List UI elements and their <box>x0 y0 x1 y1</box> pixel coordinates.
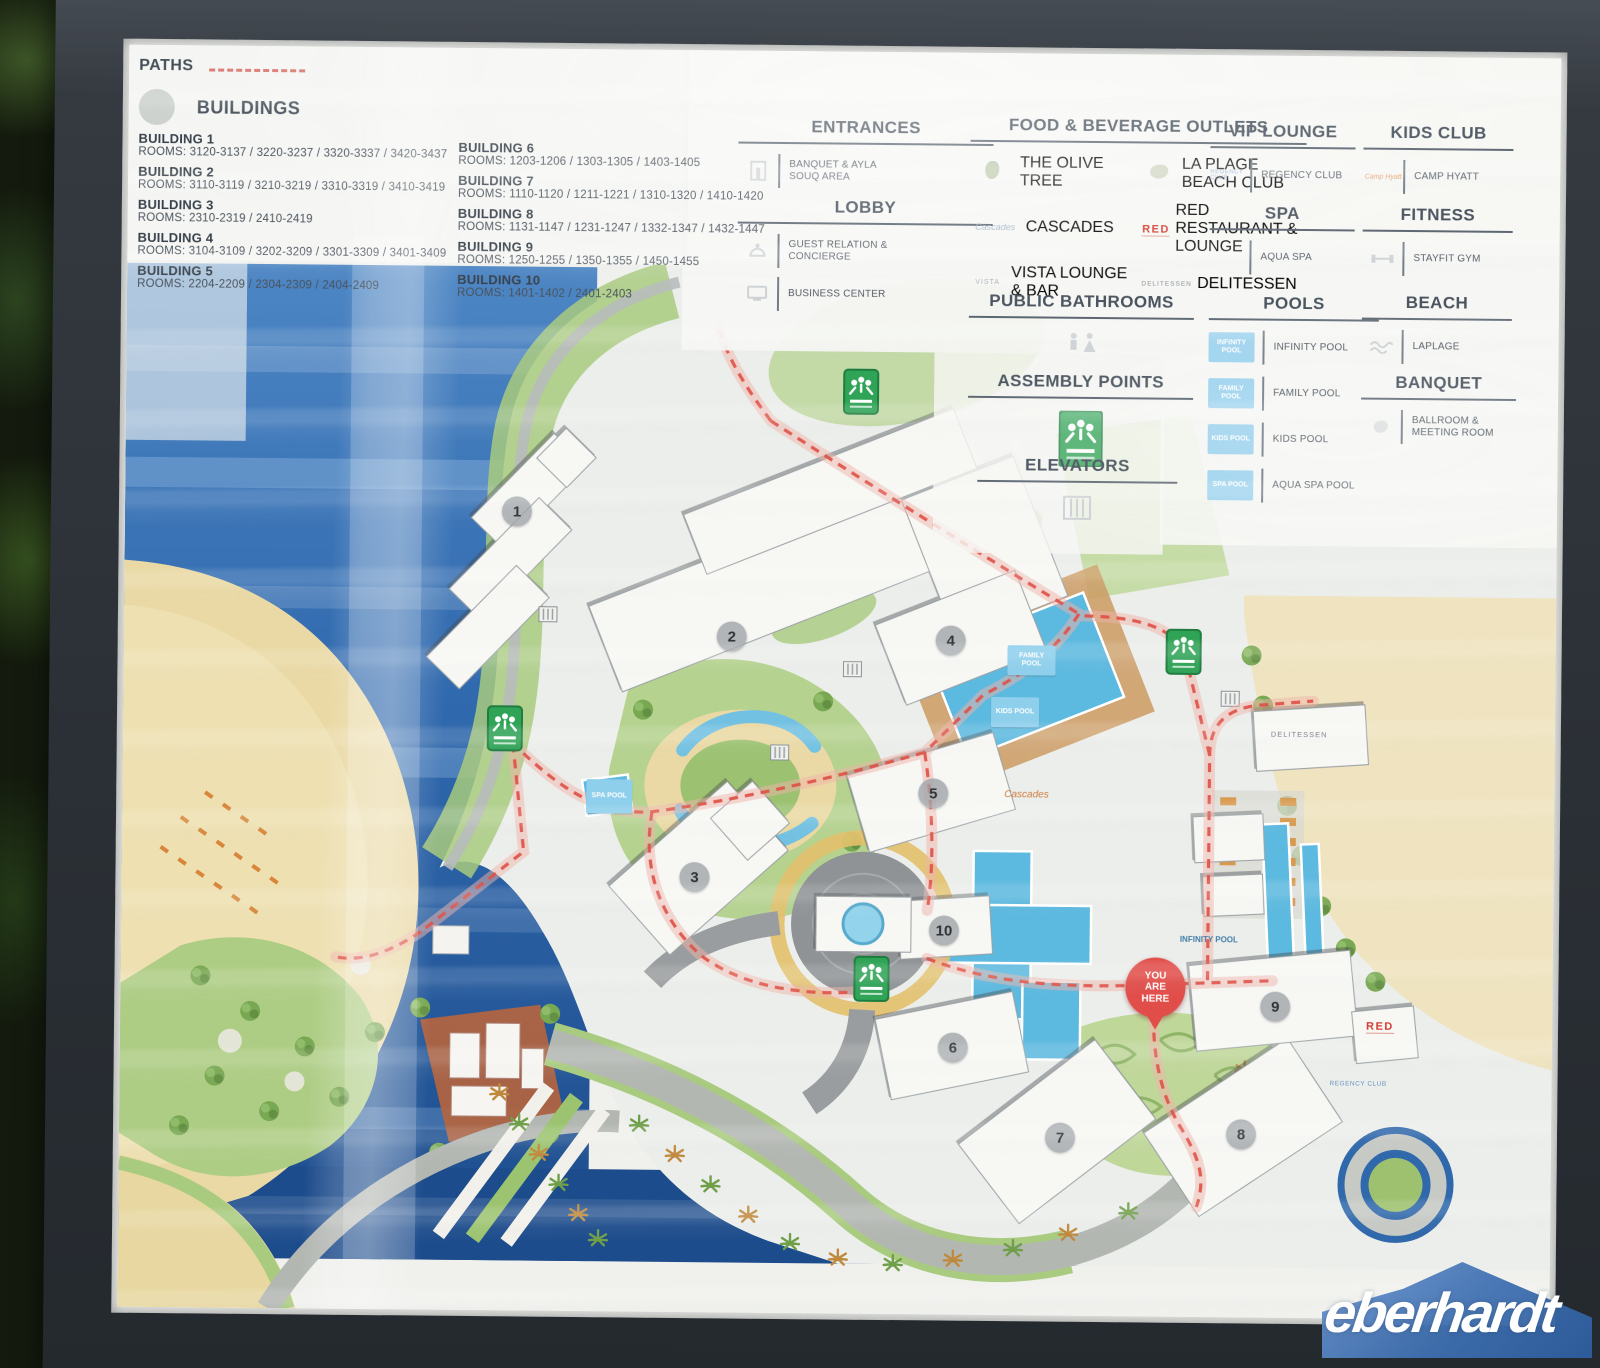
legend-row: GUEST RELATION & CONCIERGE <box>737 234 992 270</box>
legend-row: Cascades CASCADES <box>969 200 1134 256</box>
map-marker-building-5: 5 <box>918 778 948 808</box>
legend-row: INFINITY POOL INFINITY POOL <box>1208 330 1378 366</box>
building-dot-sample <box>139 89 175 125</box>
map-label-regency-club: REGENCY CLUB <box>1329 1080 1386 1088</box>
legend-row: LAPLAGE <box>1361 330 1511 365</box>
map-marker-building-8: 8 <box>1226 1119 1256 1149</box>
building-entry: BUILDING 5ROOMS: 2204-2209 / 2304-2309 /… <box>137 263 462 293</box>
olive-tree-logo <box>970 160 1020 183</box>
legend-row: BALLROOM & MEETING ROOM <box>1361 410 1516 445</box>
map-marker-building-3: 3 <box>679 862 709 892</box>
building-entry: BUILDING 10ROOMS: 1401-1402 / 2401-2403 <box>457 272 767 302</box>
assembly-title: ASSEMBLY POINTS <box>968 371 1193 400</box>
sign-frame: PATHS BUILDINGS BUILDING 1ROOMS: 3120-31… <box>43 0 1600 1368</box>
buildings-legend: BUILDINGS <box>139 89 301 127</box>
building-entry: BUILDING 8ROOMS: 1131-1147 / 1231-1247 /… <box>458 206 768 236</box>
legend-row: AQUA SPA <box>1209 240 1354 275</box>
kids-pool-chip: KIDS POOL <box>1208 424 1254 454</box>
legend-row: BUSINESS CENTER <box>737 277 992 313</box>
paths-label: PATHS <box>139 57 194 76</box>
paths-dash-sample <box>210 68 306 72</box>
map-marker-building-1: 1 <box>502 496 532 526</box>
beach-title: BEACH <box>1362 293 1512 321</box>
buildings-label: BUILDINGS <box>197 97 301 119</box>
entrance-icon <box>738 160 778 182</box>
banquet-title: BANQUET <box>1361 373 1516 401</box>
dumbbell-icon <box>1362 253 1402 265</box>
map-marker-building-4: 4 <box>936 625 966 655</box>
vip-title: VIP LOUNGE <box>1210 121 1355 149</box>
business-center-icon <box>737 285 777 303</box>
lobby-title: LOBBY <box>738 197 993 226</box>
section-vip-lounge: VIP LOUNGE REGENCY CLUB REGENCY CLUB <box>1210 121 1356 193</box>
section-banquet: BANQUET BALLROOM & MEETING ROOM <box>1361 373 1517 445</box>
watermark-text: eberhardt <box>1277 1280 1600 1345</box>
map-marker-building-9: 9 <box>1260 992 1290 1022</box>
legend-row: THE OLIVE TREE <box>970 152 1134 194</box>
vista-logo: VISTA <box>969 278 1011 285</box>
legend-row: BANQUET & AYLA SOUQ AREA <box>738 154 993 190</box>
banquet-icon <box>1361 421 1401 433</box>
fitness-title: FITNESS <box>1363 205 1513 233</box>
building-entry: BUILDING 6ROOMS: 1203-1206 / 1303-1305 /… <box>458 140 768 170</box>
entrances-item: BANQUET & AYLA SOUQ AREA <box>789 159 909 185</box>
kids-title: KIDS CLUB <box>1363 123 1513 151</box>
delitessen-logo: DELITESSEN <box>1141 280 1197 288</box>
beach-waves-icon <box>1362 340 1402 354</box>
camp-hyatt-logo: Camp Hyatt <box>1363 173 1403 180</box>
legend-row: SPA POOL AQUA SPA POOL <box>1207 468 1377 504</box>
watermark: eberhardt <box>1282 1262 1600 1362</box>
map-marker-building-6: 6 <box>938 1033 968 1063</box>
pools-title: POOLS <box>1209 293 1379 322</box>
section-entrances: ENTRANCES BANQUET & AYLA SOUQ AREA <box>738 117 994 190</box>
elevator-icon <box>977 494 1177 522</box>
map-label-family-pool: FAMILY POOL <box>1007 645 1055 675</box>
sign-tilt-wrapper: PATHS BUILDINGS BUILDING 1ROOMS: 3120-31… <box>43 0 1600 1368</box>
elevators-title: ELEVATORS <box>977 455 1177 484</box>
map-marker-building-2: 2 <box>717 621 747 651</box>
spa-title: SPA <box>1210 203 1355 231</box>
legend-row: FAMILY POOL FAMILY POOL <box>1208 376 1378 412</box>
building-list-col2: BUILDING 6ROOMS: 1203-1206 / 1303-1305 /… <box>457 140 769 308</box>
paths-legend: PATHS <box>139 57 306 77</box>
section-assembly: ASSEMBLY POINTS <box>967 371 1193 468</box>
concierge-bell-icon <box>737 241 777 261</box>
sign-mat: PATHS BUILDINGS BUILDING 1ROOMS: 3120-31… <box>111 39 1567 1327</box>
section-elevators: ELEVATORS <box>977 455 1178 522</box>
building-entry: BUILDING 1ROOMS: 3120-3137 / 3220-3237 /… <box>138 131 463 161</box>
lobby-item: GUEST RELATION & CONCIERGE <box>788 239 908 265</box>
building-entry: BUILDING 4ROOMS: 3104-3109 / 3202-3209 /… <box>137 230 462 260</box>
legend-row: KIDS POOL KIDS POOL <box>1208 422 1378 458</box>
map-marker-building-7: 7 <box>1045 1123 1075 1153</box>
map-marker-building-10: 10 <box>929 915 959 945</box>
bathrooms-title: PUBLIC BATHROOMS <box>969 291 1194 320</box>
building-entry: BUILDING 3ROOMS: 2310-2319 / 2410-2419 <box>138 197 463 227</box>
section-lobby: LOBBY GUEST RELATION & CONCIERGE <box>737 197 993 313</box>
lobby-item: BUSINESS CENTER <box>788 288 886 301</box>
infinity-pool-chip: INFINITY POOL <box>1208 332 1254 362</box>
legend-row: STAYFIT GYM <box>1362 242 1512 277</box>
map-label-spa-pool: SPA POOL <box>586 779 632 813</box>
photo-of-resort-map-sign: PATHS BUILDINGS BUILDING 1ROOMS: 3120-31… <box>0 0 1600 1368</box>
legend-row: Camp Hyatt CAMP HYATT <box>1363 160 1513 195</box>
section-kids-club: KIDS CLUB Camp Hyatt CAMP HYATT <box>1363 123 1514 195</box>
entrances-title: ENTRANCES <box>738 117 993 146</box>
map-label-red-restaurant: RED <box>1366 1021 1394 1034</box>
building-entry: BUILDING 2ROOMS: 3110-3119 / 3210-3219 /… <box>138 164 463 194</box>
legend-row: REGENCY CLUB REGENCY CLUB <box>1210 158 1355 193</box>
building-list-col1: BUILDING 1ROOMS: 3120-3137 / 3220-3237 /… <box>137 131 464 299</box>
family-pool-chip: FAMILY POOL <box>1208 378 1254 408</box>
resort-map-sign: PATHS BUILDINGS BUILDING 1ROOMS: 3120-31… <box>117 45 1561 1321</box>
cascades-logo: Cascades <box>970 222 1026 233</box>
spa-pool-chip: SPA POOL <box>1207 470 1253 500</box>
building-entry: BUILDING 7ROOMS: 1110-1120 / 1211-1221 /… <box>458 173 768 203</box>
map-label-cascades: Cascades <box>1004 789 1049 800</box>
you-are-here-pin: YOU ARE HERE <box>1125 957 1186 1018</box>
map-label-infinity-pool: INFINITY POOL <box>1177 935 1241 945</box>
section-bathrooms: PUBLIC BATHROOMS <box>968 291 1194 358</box>
map-label-delitessen: DELITESSEN <box>1271 730 1328 740</box>
section-fitness: FITNESS STAYFIT GYM <box>1362 205 1513 277</box>
section-beach: BEACH LAPLAGE <box>1361 293 1512 365</box>
building-entry: BUILDING 9ROOMS: 1250-1255 / 1350-1355 /… <box>457 239 767 269</box>
map-label-kids-pool: KIDS POOL <box>991 697 1039 727</box>
la-plage-logo <box>1142 164 1182 183</box>
red-logo: RED <box>1142 223 1170 236</box>
section-spa: SPA AQUA SPA <box>1209 203 1355 275</box>
section-pools: POOLS INFINITY POOL INFINITY POOL FAMILY… <box>1207 293 1379 504</box>
regency-club-logo: REGENCY CLUB <box>1210 169 1250 181</box>
restroom-icon <box>968 330 1193 358</box>
